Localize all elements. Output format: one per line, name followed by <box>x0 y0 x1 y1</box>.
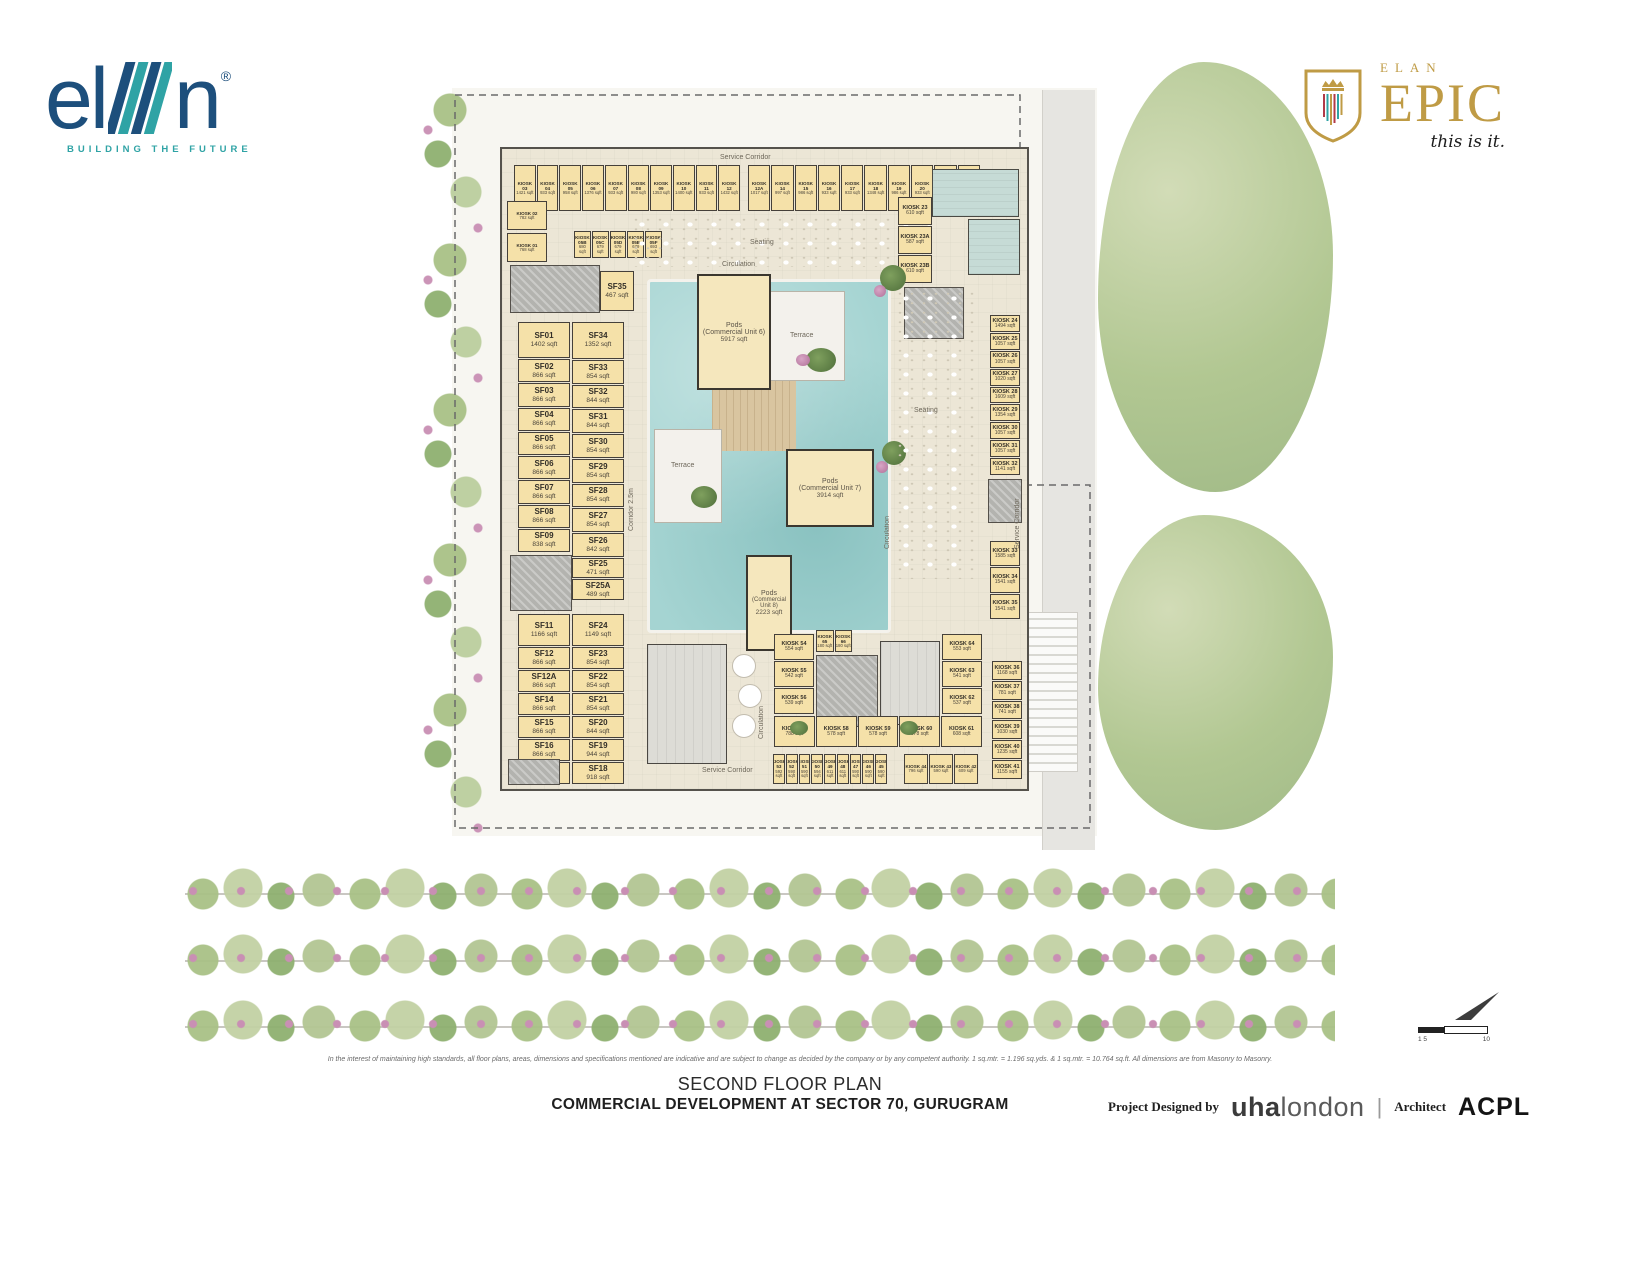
unit-area: 918 sqft <box>586 774 609 781</box>
kiosk-unit: KIOSK 18 1348 sqft <box>864 165 886 211</box>
right-kiosk-column-lower: KIOSK 36 1168 sqft KIOSK 37 781 sqft KIO… <box>992 661 1022 779</box>
sf-unit: SF12A 866 sqft <box>518 670 570 692</box>
unit-name: SF21 <box>588 696 607 705</box>
unit-area: 1017 sqft <box>751 191 768 196</box>
unit-name: SF34 <box>588 332 607 341</box>
kiosk-unit: KIOSK 07 933 sqft <box>605 165 627 211</box>
unit-name: SF07 <box>534 484 553 493</box>
kiosk-unit: KIOSK 47 590 sqft <box>850 754 862 784</box>
unit-area: 553 sqft <box>953 647 971 653</box>
bottom-kiosk-row-right: KIOSK 44 796 sqft KIOSK 43 590 sqft KIOS… <box>904 754 978 784</box>
right-green-area-upper <box>1098 62 1333 492</box>
top-kiosk-row-a: KIOSK 03 1421 sqft KIOSK 04 933 sqft KIO… <box>514 165 740 211</box>
kiosk-unit: KIOSK 26 1057 sqft <box>990 351 1020 368</box>
unit-area: 578 sqft <box>827 732 845 738</box>
kiosk-unit: KIOSK 41 1155 sqft <box>992 760 1022 779</box>
credits-divider: | <box>1377 1094 1383 1120</box>
flower-row-2 <box>185 953 1335 963</box>
left-tree-strip <box>418 88 502 836</box>
unit-area: 590 sqft <box>800 770 810 779</box>
terrace-lower-label: Terrace <box>671 462 694 469</box>
unit-area: 590 sqft <box>934 769 949 774</box>
unit-area: 1353 sqft <box>652 191 669 196</box>
unit-area: 610 sqft <box>906 269 924 275</box>
kiosk-02-unit: KIOSK 02 782 sqft <box>507 201 547 230</box>
unit-name: SF19 <box>588 742 607 751</box>
plan-title: SECOND FLOOR PLAN <box>450 1074 1110 1095</box>
service-room-2 <box>968 219 1020 275</box>
stair-core-midleft <box>510 555 572 611</box>
credits: Project Designed by uhalondon | Architec… <box>1108 1086 1548 1128</box>
sf-column-1: SF01 1402 sqft SF02 866 sqft SF03 866 sq… <box>518 322 570 552</box>
sf-unit: SF01 1402 sqft <box>518 322 570 358</box>
sf-unit: SF07 866 sqft <box>518 480 570 503</box>
unit-area: 980 sqft <box>631 191 646 196</box>
elan-tagline: BUILDING THE FUTURE <box>67 144 345 155</box>
kiosk-unit: KIOSK 12A 1017 sqft <box>748 165 770 211</box>
unit-name: SF18 <box>588 765 607 774</box>
unit-name: SF05 <box>534 435 553 444</box>
unit-name: SF25 <box>588 560 607 569</box>
elan-wordmark-n: n <box>174 65 219 134</box>
unit-area: 933 sqft <box>608 191 623 196</box>
unit-area: 854 sqft <box>586 705 609 712</box>
flower-icon <box>874 285 886 297</box>
uha-light: london <box>1280 1092 1364 1122</box>
seating-top-label: Seating <box>750 239 774 246</box>
unit-area: 590 sqft <box>851 770 861 779</box>
terrace-upper-label: Terrace <box>790 332 813 339</box>
unit-area: 679 sqft <box>611 245 626 254</box>
unit-area: 997 sqft <box>775 191 790 196</box>
unit-name: SF24 <box>588 622 607 631</box>
kiosk-unit: KIOSK 05 958 sqft <box>559 165 581 211</box>
kiosk-unit: KIOSK 28 1609 sqft <box>990 387 1020 404</box>
kiosk-unit: KIOSK 48 611 sqft <box>837 754 849 784</box>
unit-area: 1354 sqft <box>995 413 1016 419</box>
kiosk-unit: KIOSK 23A 587 sqft <box>898 226 932 254</box>
unit-area: 958 sqft <box>563 191 578 196</box>
unit-name: SF29 <box>588 463 607 472</box>
unit-name: SF27 <box>588 512 607 521</box>
unit-area: 608 sqft <box>953 732 971 738</box>
unit-name: KIOSK 51 <box>799 759 811 769</box>
uhalondon-logo: uhalondon <box>1231 1092 1365 1123</box>
scale-label-right: 10 <box>1483 1036 1490 1043</box>
plant-icon <box>790 721 808 735</box>
scale-bar: 1 5 10 <box>1418 1026 1510 1043</box>
unit-area: 866 sqft <box>532 659 555 666</box>
unit-area: 590 sqft <box>787 770 797 779</box>
bottom-kiosk-row-left: KIOSK 53 592 sqft KIOSK 52 590 sqft KIOS… <box>773 754 887 784</box>
pod-area: 3914 sqft <box>817 492 844 499</box>
unit-area: 467 sqft <box>605 292 628 299</box>
unit-area: 1541 sqft <box>995 580 1016 586</box>
unit-name: KIOSK 50 <box>811 759 823 769</box>
kiosk-unit: KIOSK 16 933 sqft <box>818 165 840 211</box>
unit-name: SF06 <box>534 460 553 469</box>
unit-name: SF33 <box>588 364 607 373</box>
kiosk-unit: KIOSK 62 537 sqft <box>942 688 982 714</box>
unit-area: 866 sqft <box>532 493 555 500</box>
unit-area: 180 sqft <box>817 644 832 649</box>
flower-row-3 <box>185 1019 1335 1029</box>
kiosk-unit: KIOSK 15 986 sqft <box>795 165 817 211</box>
kiosk-unit: KIOSK 09 1353 sqft <box>650 165 672 211</box>
unit-area: 854 sqft <box>586 472 609 479</box>
unit-area: 594 sqft <box>812 770 822 779</box>
unit-area: 1400 sqft <box>675 191 692 196</box>
flower-row-1 <box>185 886 1335 896</box>
epic-name: EPIC <box>1380 76 1505 130</box>
unit-area: 844 sqft <box>586 728 609 735</box>
scale-label-left: 1 5 <box>1418 1036 1427 1043</box>
unit-area: 1585 sqft <box>995 554 1016 560</box>
service-corridor-top-label: Service Corridor <box>720 154 771 161</box>
unit-area: 854 sqft <box>586 373 609 380</box>
kiosk-unit: KIOSK 08 980 sqft <box>628 165 650 211</box>
kiosk-unit: KIOSK 39 1030 sqft <box>992 720 1022 739</box>
unit-area: 1057 sqft <box>995 342 1016 348</box>
sf-unit: SF25A 489 sqft <box>572 579 624 600</box>
corridor-left-label: Corridor 2.5m <box>628 461 635 531</box>
kiosk-unit: KIOSK 58 578 sqft <box>816 716 857 747</box>
kiosk-unit: KIOSK 34 1541 sqft <box>990 567 1020 592</box>
unit-name: SF12A <box>532 673 557 682</box>
unit-name: SF09 <box>534 532 553 541</box>
kiosk-unit: KIOSK 63 541 sqft <box>942 661 982 687</box>
flower-icon <box>876 461 888 473</box>
unit-area: 933 sqft <box>699 191 714 196</box>
unit-name: SF15 <box>534 719 553 728</box>
unit-area: 1352 sqft <box>585 341 612 348</box>
unit-area: 1057 sqft <box>995 449 1016 455</box>
unit-name: SF12 <box>534 650 553 659</box>
unit-area: 1402 sqft <box>531 341 558 348</box>
kiosk-unit: KIOSK 06 1376 sqft <box>582 165 604 211</box>
service-block-center <box>880 641 940 725</box>
kiosk-unit: KIOSK 43 590 sqft <box>929 754 953 784</box>
sf-unit: SF09 838 sqft <box>518 529 570 552</box>
unit-area: 609 sqft <box>959 769 974 774</box>
kiosk-unit: KIOSK 37 781 sqft <box>992 681 1022 700</box>
designed-by-label: Project Designed by <box>1108 1099 1219 1115</box>
scale-bar-solid <box>1418 1027 1444 1033</box>
unit-area: 782 sqft <box>520 216 535 221</box>
kiosk-unit: KIOSK 14 997 sqft <box>771 165 793 211</box>
unit-name: SF28 <box>588 487 607 496</box>
unit-name: SF03 <box>534 387 553 396</box>
unit-area: 1166 sqft <box>531 631 557 638</box>
unit-area: 741 sqft <box>998 710 1016 716</box>
sf-unit: SF04 866 sqft <box>518 408 570 431</box>
pod-commercial-unit-7: Pods (Commercial Unit 7) 3914 sqft <box>786 449 874 527</box>
unit-area: 1030 sqft <box>997 730 1018 736</box>
unit-area: 866 sqft <box>532 705 555 712</box>
sf-unit: SF11 1166 sqft <box>518 614 570 646</box>
sf-unit: SF33 854 sqft <box>572 360 624 384</box>
circulation-top-label: Circulation <box>722 261 755 268</box>
unit-area: 554 sqft <box>785 647 803 653</box>
unit-area: 471 sqft <box>586 569 609 576</box>
sf-unit: SF34 1352 sqft <box>572 322 624 359</box>
service-room-1 <box>932 169 1019 217</box>
unit-name: KIOSK 47 <box>850 759 862 769</box>
unit-area: 866 sqft <box>532 420 555 427</box>
sf-unit: SF26 842 sqft <box>572 533 624 557</box>
unit-area: 933 sqft <box>540 191 555 196</box>
circulation-left-label: Circulation <box>758 679 765 739</box>
service-corridor-right-label: Service Corridor <box>1014 449 1021 549</box>
sf-unit: SF32 844 sqft <box>572 385 624 409</box>
unit-name: SF26 <box>588 537 607 546</box>
unit-name: KIOSK 52 <box>786 759 798 769</box>
unit-area: 592 sqft <box>774 770 784 779</box>
unit-area: 866 sqft <box>532 728 555 735</box>
unit-area: 842 sqft <box>586 546 609 553</box>
unit-name: SF31 <box>588 413 607 422</box>
kiosk-unit: KIOSK 35 1541 sqft <box>990 594 1020 619</box>
unit-area: 1155 sqft <box>997 770 1017 776</box>
building-floorplate: Service Corridor KIOSK 03 1421 sqft KIOS… <box>500 147 1029 791</box>
kiosk-unit: KIOSK 54 554 sqft <box>774 634 814 660</box>
bottom-cluster-left: KIOSK 54 554 sqft KIOSK 55 542 sqft KIOS… <box>774 634 814 714</box>
unit-area: 1609 sqft <box>995 395 1016 401</box>
top-seating-area: Seating <box>630 215 930 267</box>
unit-area: 1057 sqft <box>995 360 1016 366</box>
kiosk-unit: KIOSK 53 592 sqft <box>773 754 785 784</box>
unit-area: 986 sqft <box>798 191 813 196</box>
kiosk-unit: KIOSK 05C 679 sqft <box>592 231 609 258</box>
unit-area: 1235 sqft <box>997 750 1018 756</box>
unit-area: 611 sqft <box>825 770 835 779</box>
bottom-cluster-right: KIOSK 64 553 sqft KIOSK 63 541 sqft KIOS… <box>942 634 982 714</box>
right-green-area-lower <box>1098 515 1333 830</box>
sf-unit: SF21 854 sqft <box>572 693 624 715</box>
kiosk-unit: KIOSK 25 1057 sqft <box>990 333 1020 350</box>
sf-unit: SF05 866 sqft <box>518 432 570 455</box>
pod-unit: (Commercial Unit 8) <box>748 597 790 609</box>
pod-unit: (Commercial Unit 6) <box>703 329 765 336</box>
disclaimer-text: In the interest of maintaining high stan… <box>260 1056 1340 1063</box>
kiosk-unit: KIOSK 55 542 sqft <box>774 661 814 687</box>
terrace-upper: Terrace <box>769 291 845 381</box>
kiosk-unit: KIOSK 52 590 sqft <box>786 754 798 784</box>
kiosk-unit: KIOSK 50 594 sqft <box>811 754 823 784</box>
unit-area: 537 sqft <box>953 701 971 707</box>
unit-name: SF08 <box>534 508 553 517</box>
sf-unit: SF31 844 sqft <box>572 409 624 433</box>
kiosk-unit: KIOSK 45 590 sqft <box>875 754 887 784</box>
unit-area: 986 sqft <box>891 191 906 196</box>
unit-area: 933 sqft <box>915 191 930 196</box>
unit-name: KIOSK 45 <box>875 759 887 769</box>
planter-icon <box>691 486 717 508</box>
unit-area: 578 sqft <box>869 732 887 738</box>
pod-area: 5917 sqft <box>721 336 748 343</box>
unit-area: 180 sqft <box>836 644 851 649</box>
unit-area: 854 sqft <box>586 496 609 503</box>
sf-unit: SF30 854 sqft <box>572 434 624 458</box>
bottom-cluster-top: KIOSK 65 180 sqft KIOSK 66 180 sqft <box>816 630 852 652</box>
elan-wordmark-el: el <box>45 65 106 134</box>
pod-name: Pods <box>726 322 742 329</box>
epic-shield-icon <box>1302 67 1364 145</box>
unit-area: 866 sqft <box>532 396 555 403</box>
kiosk-unit: KIOSK 10 1400 sqft <box>673 165 695 211</box>
sf-unit: SF25 471 sqft <box>572 558 624 579</box>
unit-area: 489 sqft <box>586 591 609 598</box>
unit-area: 1057 sqft <box>995 431 1016 437</box>
right-kiosk-column-mid: KIOSK 33 1585 sqft KIOSK 34 1541 sqft KI… <box>990 541 1020 619</box>
kiosk-unit: KIOSK 64 553 sqft <box>942 634 982 660</box>
unit-area: 944 sqft <box>586 751 609 758</box>
stair-core-bottomleft <box>508 759 560 785</box>
planter-icon <box>806 348 836 372</box>
sf-unit: SF15 866 sqft <box>518 716 570 738</box>
kiosk-unit: KIOSK 38 741 sqft <box>992 701 1022 720</box>
uha-bold: uha <box>1231 1092 1281 1122</box>
unit-area: 1376 sqft <box>584 191 601 196</box>
unit-area: 854 sqft <box>586 521 609 528</box>
unit-area: 1149 sqft <box>585 631 611 638</box>
unit-name: SF01 <box>534 332 553 341</box>
unit-area: 838 sqft <box>532 541 555 548</box>
elan-stripes-a-icon <box>108 62 172 134</box>
kiosk-unit: KIOSK 66 180 sqft <box>835 630 853 652</box>
unit-name: KIOSK 53 <box>773 759 785 769</box>
sf-unit: SF16 866 sqft <box>518 739 570 761</box>
unit-area: 854 sqft <box>586 447 609 454</box>
brochure-sheet: el n ® BUILDING THE FUTURE ELAN EPIC thi… <box>0 0 1650 1275</box>
kiosk-unit: KIOSK 40 1235 sqft <box>992 740 1022 759</box>
right-seating-area: Seating <box>894 289 974 579</box>
unit-area: 866 sqft <box>532 751 555 758</box>
unit-area: 933 sqft <box>822 191 837 196</box>
unit-area: 539 sqft <box>785 701 803 707</box>
sf-unit: SF14 866 sqft <box>518 693 570 715</box>
unit-area: 1432 sqft <box>721 191 738 196</box>
unit-area: 781 sqft <box>998 691 1016 697</box>
sf-unit: SF24 1149 sqft <box>572 614 624 646</box>
sf-unit: SF27 854 sqft <box>572 508 624 532</box>
unit-name: KIOSK 49 <box>824 759 836 769</box>
unit-area: 1541 sqft <box>995 607 1016 613</box>
kiosk-unit: KIOSK 05D 679 sqft <box>610 231 627 258</box>
seating-right-label: Seating <box>914 407 938 414</box>
unit-name: SF04 <box>534 411 553 420</box>
kiosk-unit: KIOSK 61 608 sqft <box>941 716 982 747</box>
pod-name: Pods <box>761 590 777 597</box>
unit-name: SF14 <box>534 696 553 705</box>
acpl-logo: ACPL <box>1458 1093 1530 1122</box>
lounge-seat-icon <box>732 714 756 738</box>
sf-unit: SF02 866 sqft <box>518 359 570 382</box>
unit-name: SF23 <box>588 650 607 659</box>
kiosk-unit: KIOSK 24 1494 sqft <box>990 315 1020 332</box>
sf-unit: SF28 854 sqft <box>572 484 624 508</box>
unit-name: SF25A <box>586 582 611 591</box>
unit-name: SF35 <box>607 283 626 292</box>
unit-area: 679 sqft <box>593 245 608 254</box>
north-arrow-icon <box>1455 988 1501 1024</box>
unit-area: 1421 sqft <box>516 191 533 196</box>
unit-area: 541 sqft <box>953 674 971 680</box>
kiosk-unit: KIOSK 51 590 sqft <box>799 754 811 784</box>
sf-unit: SF22 854 sqft <box>572 670 624 692</box>
unit-area: 1494 sqft <box>995 324 1016 330</box>
unit-area: 1168 sqft <box>997 671 1017 677</box>
unit-area: 590 sqft <box>863 770 873 779</box>
pod-area: 2223 sqft <box>756 609 783 616</box>
stair-core-topleft <box>510 265 600 313</box>
unit-name: SF20 <box>588 719 607 728</box>
epic-logo: ELAN EPIC this is it. <box>1302 60 1505 152</box>
unit-area: 611 sqft <box>838 770 848 779</box>
pod-commercial-unit-6: Pods (Commercial Unit 6) 5917 sqft <box>697 274 771 390</box>
unit-area: 768 sqft <box>520 248 535 253</box>
circulation-right-label: Circulation <box>884 489 891 549</box>
unit-area: 587 sqft <box>906 240 924 246</box>
kiosk-unit: KIOSK 65 180 sqft <box>816 630 834 652</box>
courtyard: Terrace Terrace Pods (Commercial Unit 6)… <box>642 269 892 651</box>
pod-unit: (Commercial Unit 7) <box>799 485 861 492</box>
pod-name: Pods <box>822 478 838 485</box>
sf-unit: SF20 844 sqft <box>572 716 624 738</box>
unit-area: 542 sqft <box>785 674 803 680</box>
unit-area: 1348 sqft <box>867 191 884 196</box>
sf-unit: SF23 854 sqft <box>572 647 624 669</box>
unit-area: 680 sqft <box>575 245 590 254</box>
sf-unit: SF06 866 sqft <box>518 456 570 479</box>
unit-area: 866 sqft <box>532 372 555 379</box>
unit-area: 844 sqft <box>586 397 609 404</box>
sf-column-2: SF34 1352 sqft SF33 854 sqft SF32 844 sq… <box>572 322 624 600</box>
unit-area: 866 sqft <box>532 682 555 689</box>
kiosk-unit: KIOSK 05B 680 sqft <box>574 231 591 258</box>
sf-unit: SF19 944 sqft <box>572 739 624 761</box>
service-corridor-bottom-label: Service Corridor <box>702 767 753 774</box>
unit-name: KIOSK 48 <box>837 759 849 769</box>
terrace-lower: Terrace <box>654 429 722 523</box>
plant-icon <box>900 721 918 735</box>
unit-area: 866 sqft <box>532 469 555 476</box>
unit-name: KIOSK 46 <box>862 759 874 769</box>
service-block-bottomleft <box>647 644 727 764</box>
unit-area: 796 sqft <box>909 769 924 774</box>
kiosk-unit: KIOSK 23 610 sqft <box>898 197 932 225</box>
unit-area: 866 sqft <box>532 444 555 451</box>
unit-area: 1020 sqft <box>995 377 1016 383</box>
kiosk-unit: KIOSK 30 1057 sqft <box>990 422 1020 439</box>
unit-area: 854 sqft <box>586 659 609 666</box>
sf-column-4: SF24 1149 sqft SF23 854 sqft SF22 854 sq… <box>572 614 624 784</box>
unit-area: 1141 sqft <box>995 467 1015 473</box>
kiosk-unit: KIOSK 44 796 sqft <box>904 754 928 784</box>
sf-unit: SF03 866 sqft <box>518 383 570 406</box>
unit-name: SF02 <box>534 363 553 372</box>
kiosk-unit: KIOSK 56 539 sqft <box>774 688 814 714</box>
elan-wordmark: el n ® <box>45 62 345 134</box>
unit-area: 866 sqft <box>532 517 555 524</box>
kiosk-unit: KIOSK 11 933 sqft <box>696 165 718 211</box>
elan-logo: el n ® BUILDING THE FUTURE <box>45 62 345 155</box>
kiosk-unit: KIOSK 27 1020 sqft <box>990 369 1020 386</box>
unit-area: 590 sqft <box>876 770 886 779</box>
kiosk-unit: KIOSK 46 590 sqft <box>862 754 874 784</box>
unit-name: SF32 <box>588 388 607 397</box>
flower-icon <box>796 354 810 366</box>
